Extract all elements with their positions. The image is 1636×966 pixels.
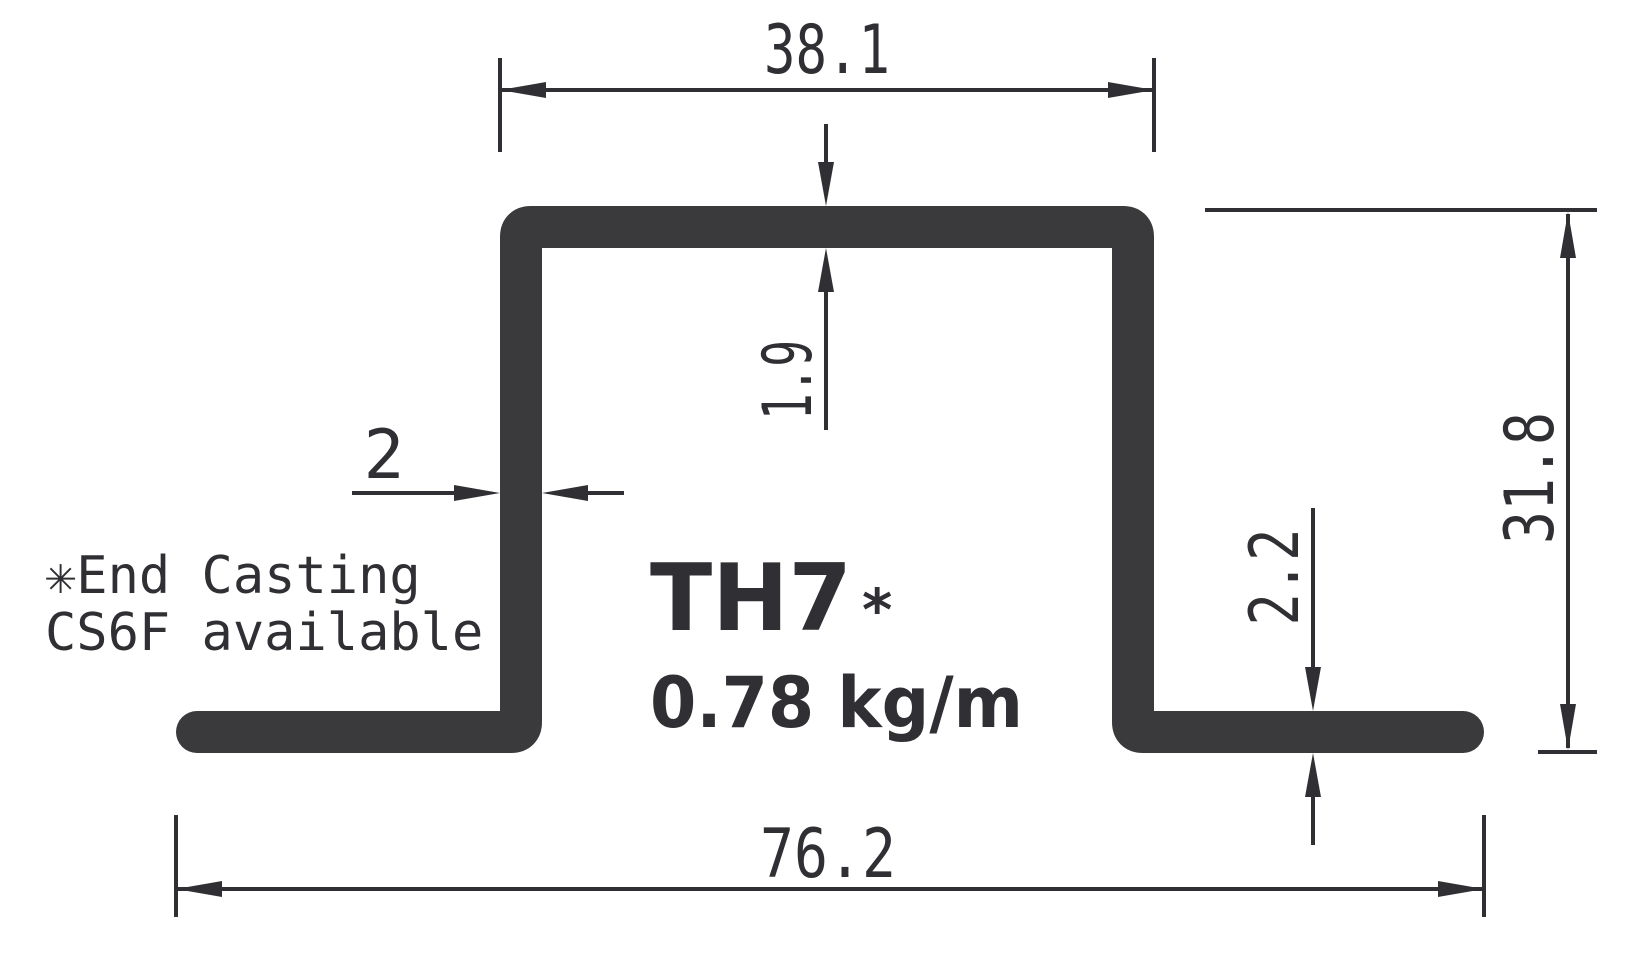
- arrowhead-right-icon: [1438, 881, 1484, 897]
- arrowhead-down-icon: [818, 162, 834, 206]
- weight-per-meter-label: 0.78 kg/m: [650, 662, 1023, 744]
- dim-overall-height: 31.8: [1205, 210, 1597, 752]
- note-line-2: CS6F available: [45, 603, 483, 663]
- dim-value-overall-height: 31.8: [1491, 412, 1570, 544]
- drawing-canvas: 38.1 1.9 2 2.2: [0, 0, 1636, 966]
- dim-value-overall-width: 76.2: [760, 815, 896, 894]
- dim-value-top-wall-thickness: 1.9: [749, 340, 828, 420]
- arrowhead-left-icon: [500, 82, 546, 98]
- arrowhead-up-icon: [818, 248, 834, 292]
- arrowhead-left-icon: [542, 485, 588, 501]
- arrowhead-right-icon: [454, 485, 500, 501]
- arrowhead-up-icon: [1305, 753, 1321, 797]
- arrowhead-down-icon: [1560, 704, 1576, 750]
- dim-overall-width: 76.2: [176, 815, 1484, 917]
- arrowhead-down-icon: [1305, 667, 1321, 711]
- dim-value-flange-thickness: 2.2: [1236, 529, 1315, 626]
- note-line-1: ✳End Casting: [45, 546, 421, 606]
- dim-side-wall-thickness: 2: [352, 416, 624, 501]
- part-label: TH7: [650, 544, 852, 652]
- arrowhead-right-icon: [1108, 82, 1154, 98]
- profile-drawing-svg: 38.1 1.9 2 2.2: [0, 0, 1636, 966]
- dim-value-side-wall-thickness: 2: [364, 416, 405, 495]
- dim-flange-thickness: 2.2: [1236, 508, 1321, 845]
- part-label-group: TH7 * 0.78 kg/m: [650, 544, 1023, 744]
- arrowhead-left-icon: [176, 881, 222, 897]
- dim-top-wall-thickness: 1.9: [749, 124, 834, 430]
- end-casting-note: ✳End Casting CS6F available: [45, 546, 483, 663]
- arrowhead-up-icon: [1560, 212, 1576, 258]
- part-label-footnote-marker: *: [862, 576, 892, 644]
- dim-value-top-width: 38.1: [764, 11, 890, 90]
